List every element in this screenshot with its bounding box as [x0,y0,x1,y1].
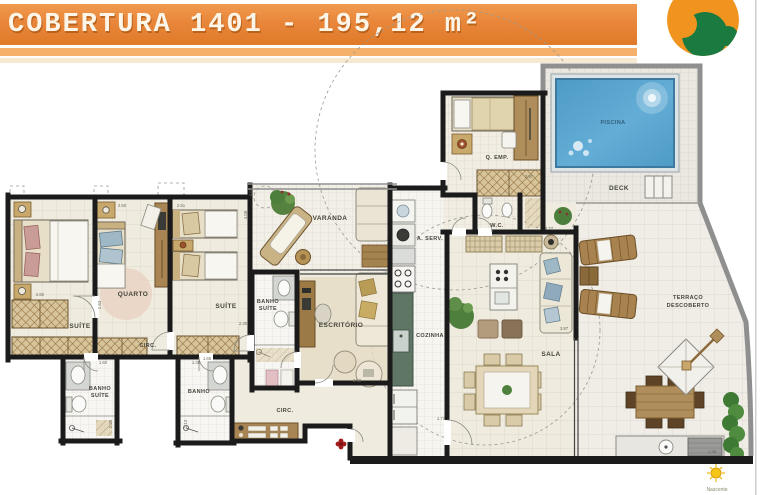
label-wc: W.C. [490,223,504,229]
single-bed-icon [97,222,125,288]
pouf-icon [334,351,356,373]
nascente-logo-icon [667,0,739,58]
ottoman-icon [478,320,498,338]
label-quarto: QUARTO [118,291,148,298]
dim: 1.63 [97,300,102,309]
barbecue-counter-icon [616,436,724,458]
dim: 2.35 [108,419,113,428]
label-area-servico: A. SERV. [417,236,443,242]
sofa-icon [356,273,390,346]
sink-icon [502,203,512,217]
dim: 2.50 [118,203,127,208]
label-circ-upper: CIRC. [140,343,157,349]
dim: 2.30 [239,321,248,326]
laundry-tank-icon [391,248,415,264]
room-escritorio [299,273,390,387]
shower-icon [525,198,541,228]
toilet-icon [274,311,295,327]
label-quarto-empregada: Q. EMP. [486,155,509,161]
armchair-icon [356,188,389,241]
dim: 3.87 [560,326,569,331]
label-nascente: Nascente [706,487,727,493]
twin-bed-icon [173,210,237,238]
dim: 1.77 [437,416,446,421]
dim: 2.13 [183,419,188,428]
double-bed-icon [14,220,88,282]
bath-mat-icon [281,370,293,386]
slide-edge [755,0,757,495]
dim: 1.38 [708,449,717,454]
toilet-icon [211,396,232,412]
mat-icon [362,245,388,267]
dim: 1.65 [203,356,212,361]
toilet-icon [66,396,86,412]
label-escritorio: ESCRITÓRIO [319,320,363,329]
chair-icon [502,132,516,148]
label-terraco-2: DESCOBERTO [667,303,710,309]
label-suite-2: SUÍTE [215,301,236,310]
cabinet-icon [391,427,417,455]
label-banho-suite-left-2: SUÍTE [91,391,109,399]
washer-icon [391,200,415,222]
dryer-icon [391,224,415,246]
dim: 2.82 [36,292,45,297]
nightstand-icon [452,134,472,154]
label-cozinha: COZINHA [416,333,444,339]
dim: 2.51 [177,203,186,208]
entry-marker-icon [336,439,347,450]
dim: 4.08 [243,210,248,219]
dim: 1.30 [192,360,201,365]
label-terraco-1: TERRAÇO [673,295,703,301]
sofa-icon [540,253,572,333]
label-varanda: VARANDA [313,215,348,222]
dim: 1.60 [99,360,108,365]
label-banho: BANHO [188,389,210,395]
dim: 2.97 [525,174,534,179]
sun-lounger-icon [579,289,637,319]
label-deck: DECK [609,185,629,192]
twin-bed-icon [173,252,237,280]
plant-icon [554,207,572,225]
tall-wardrobe-icon [514,96,538,160]
kitchen-counter-icon [389,293,413,386]
label-banho-suite-left-1: BANHO [89,386,111,392]
stove-icon [391,266,415,292]
sun-icon: Nascente [706,464,727,493]
deck-steps-icon [645,176,672,198]
label-banho-suite-mid-1: BANHO [257,299,279,305]
label-suite-1: SUÍTE [69,321,90,330]
ottoman-icon [502,320,522,338]
label-sala: SALA [541,351,560,358]
dim: 2.90 [353,378,362,383]
dim: 4.77 [545,226,554,231]
floor-plan: SUÍTE QUARTO SUÍTE CIRC. BANHO SUÍTE BAN… [0,0,770,495]
label-banho-suite-mid-2: SUÍTE [259,304,277,312]
label-piscina: PISCINA [600,120,625,126]
kitchen-island-icon [490,264,517,310]
fridge-icon [391,390,417,424]
toilet-icon [482,204,492,218]
bath-mat-icon [266,370,278,386]
sideboard-icon [234,423,298,440]
room-cozinha [389,200,417,455]
dim: 4.02 [248,187,253,196]
label-circ-lower: CIRC. [277,408,294,414]
floor-plan-slide: COBERTURA 1401 - 195,12 m² [0,0,770,495]
